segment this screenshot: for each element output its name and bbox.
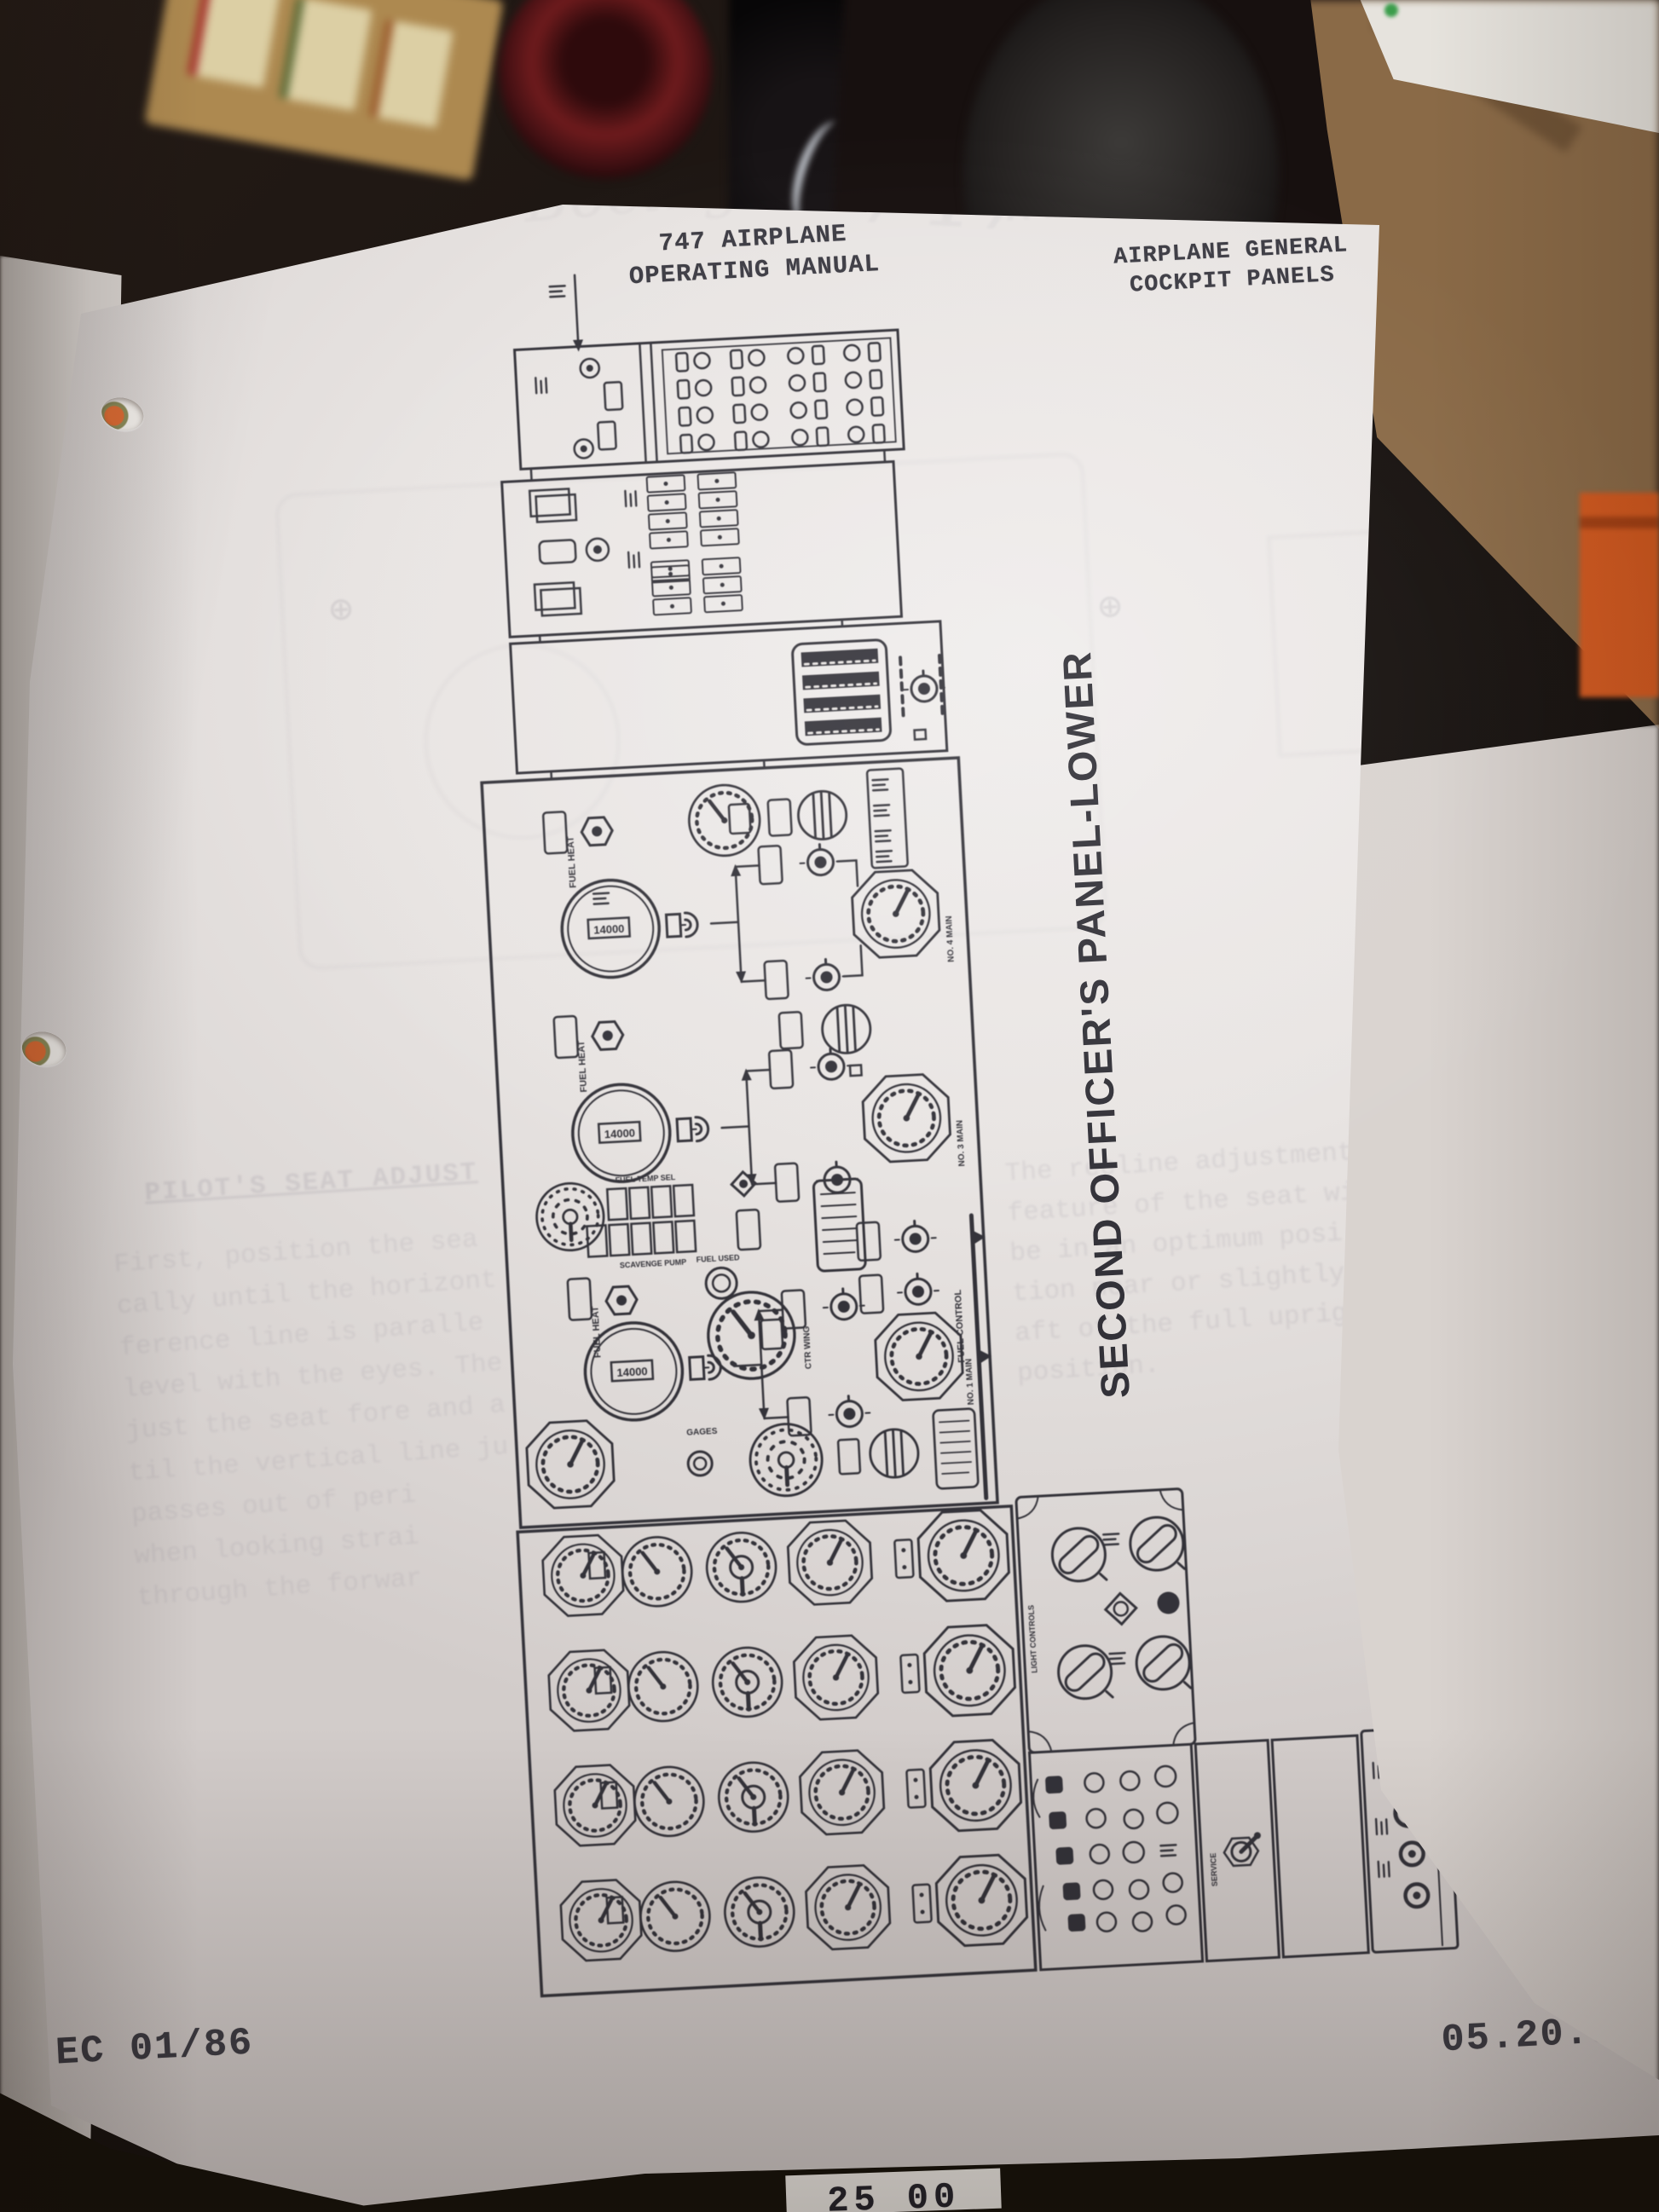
orange-book-spine xyxy=(1580,493,1659,697)
svg-text:14000: 14000 xyxy=(593,922,625,937)
tank-quantity-gauge: 14000 xyxy=(570,1082,673,1184)
callout-arrow xyxy=(549,274,584,353)
ghost-left-paragraph: First, position the sea cally until the … xyxy=(113,1217,518,1619)
svg-text:CTR WING: CTR WING xyxy=(802,1325,814,1369)
annunciator-panel xyxy=(511,621,948,773)
svg-text:FUEL TEMP SEL: FUEL TEMP SEL xyxy=(615,1173,676,1185)
svg-text:FUEL HEAT: FUEL HEAT xyxy=(565,836,578,889)
ghost-left-heading: PILOT'S SEAT ADJUST xyxy=(144,1158,479,1209)
svg-text:14000: 14000 xyxy=(616,1365,648,1379)
switch-matrix-panel xyxy=(1029,1744,1202,1970)
breaker-column xyxy=(647,475,691,615)
binder-hole xyxy=(19,1028,69,1070)
svg-text:SERVICE: SERVICE xyxy=(1209,1852,1219,1886)
svg-text:14000: 14000 xyxy=(604,1126,635,1141)
registration-mark: ⊕ xyxy=(328,585,355,634)
stamp-card xyxy=(188,0,280,88)
light-controls-panel: LIGHT CONTROLS xyxy=(1016,1488,1195,1753)
svg-text:FUEL HEAT: FUEL HEAT xyxy=(576,1040,589,1093)
circuit-breaker-panel xyxy=(502,461,902,637)
photo-of-manual-page: Boeing 747 ANUAL AIRPLANE GENERAL PILOT'… xyxy=(0,0,1659,2212)
stamp-card xyxy=(369,20,454,128)
svg-text:NO. 3 MAIN: NO. 3 MAIN xyxy=(956,1120,968,1167)
revision-date: EC 01/86 xyxy=(55,2021,254,2075)
fuel-temp-selector: FUEL TEMP SEL SCAVENGE PUMP xyxy=(584,1172,697,1271)
clipped-tab-label: 25 00 xyxy=(785,2169,1001,2212)
fuel-system-panel: FUEL HEAT 14000 xyxy=(482,758,999,1528)
svg-text:GAGES: GAGES xyxy=(686,1427,718,1438)
svg-text:FUEL CONTROL: FUEL CONTROL xyxy=(953,1289,967,1363)
svg-text:NO. 4 MAIN: NO. 4 MAIN xyxy=(945,915,957,962)
service-interphone-panel: SERVICE xyxy=(1195,1741,1279,1961)
fuel-used-reset: FUEL USED xyxy=(696,1253,742,1300)
stamp-card-box xyxy=(144,0,503,181)
svg-text:LIGHT CONTROLS: LIGHT CONTROLS xyxy=(1026,1605,1038,1673)
svg-text:SCAVENGE PUMP: SCAVENGE PUMP xyxy=(620,1257,687,1269)
green-sticker xyxy=(1384,3,1398,17)
panel-diagram: FUEL HEAT 14000 xyxy=(440,231,1467,2008)
engine-gauge-grid xyxy=(517,1506,1036,1996)
binder-hole xyxy=(98,393,147,436)
stamp-card xyxy=(279,0,372,111)
svg-text:NO. 1 MAIN: NO. 1 MAIN xyxy=(964,1359,976,1406)
dark-red-jar-lid xyxy=(499,0,712,179)
top-switch-panel xyxy=(515,330,905,469)
blank-panel xyxy=(1272,1736,1368,1957)
svg-text:FUEL USED: FUEL USED xyxy=(696,1253,740,1264)
breaker-column xyxy=(697,472,742,612)
tank-quantity-gauge: 14000 xyxy=(559,878,662,980)
